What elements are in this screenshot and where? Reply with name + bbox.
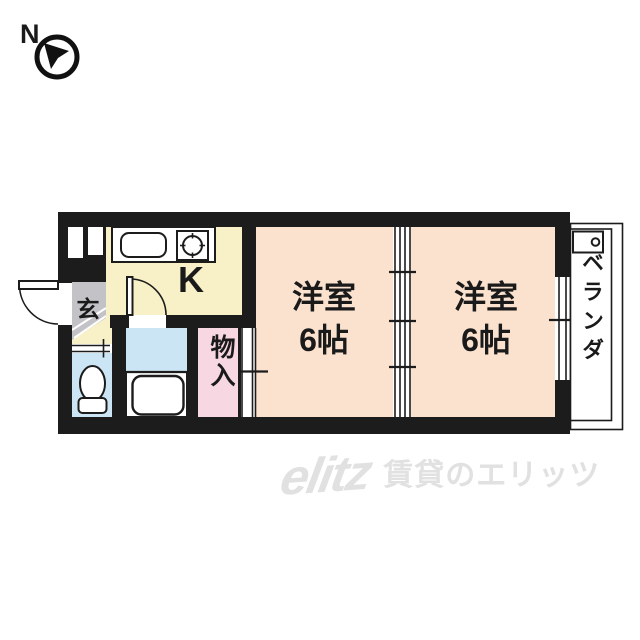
kitchen-counter	[112, 227, 215, 262]
entrance-label: 玄	[70, 290, 106, 324]
western-room-2-name: 洋室	[420, 276, 552, 319]
toilet-icon	[79, 366, 107, 413]
sink-icon	[121, 233, 166, 257]
veranda-label: ベランダ	[575, 251, 607, 411]
stove-icon	[177, 231, 208, 260]
kitchen-label: K	[168, 259, 214, 301]
floor-plan-page: N 玄 K 洋室 6帖 洋室 6帖 物入 ベランダ elitz 賃貸のエリッツ	[0, 0, 640, 640]
western-room-1-size: 6帖	[258, 319, 390, 362]
north-label: N	[20, 19, 40, 50]
western-room-1-name: 洋室	[258, 276, 390, 319]
western-room-1-label: 洋室 6帖	[258, 276, 390, 362]
watermark-logo: elitz	[277, 447, 375, 503]
bathroom-floor	[126, 328, 187, 372]
watermark-caption: 賃貸のエリッツ	[383, 461, 600, 491]
western-room-2-size: 6帖	[420, 319, 552, 362]
watermark: elitz 賃貸のエリッツ	[282, 450, 600, 500]
western-room-2-label: 洋室 6帖	[420, 276, 552, 362]
entrance-door-icon	[19, 281, 58, 324]
bathtub-icon	[126, 372, 187, 415]
storage-label: 物入	[203, 334, 239, 420]
washing-machine-pan-icon	[573, 232, 603, 253]
compass	[37, 37, 77, 77]
